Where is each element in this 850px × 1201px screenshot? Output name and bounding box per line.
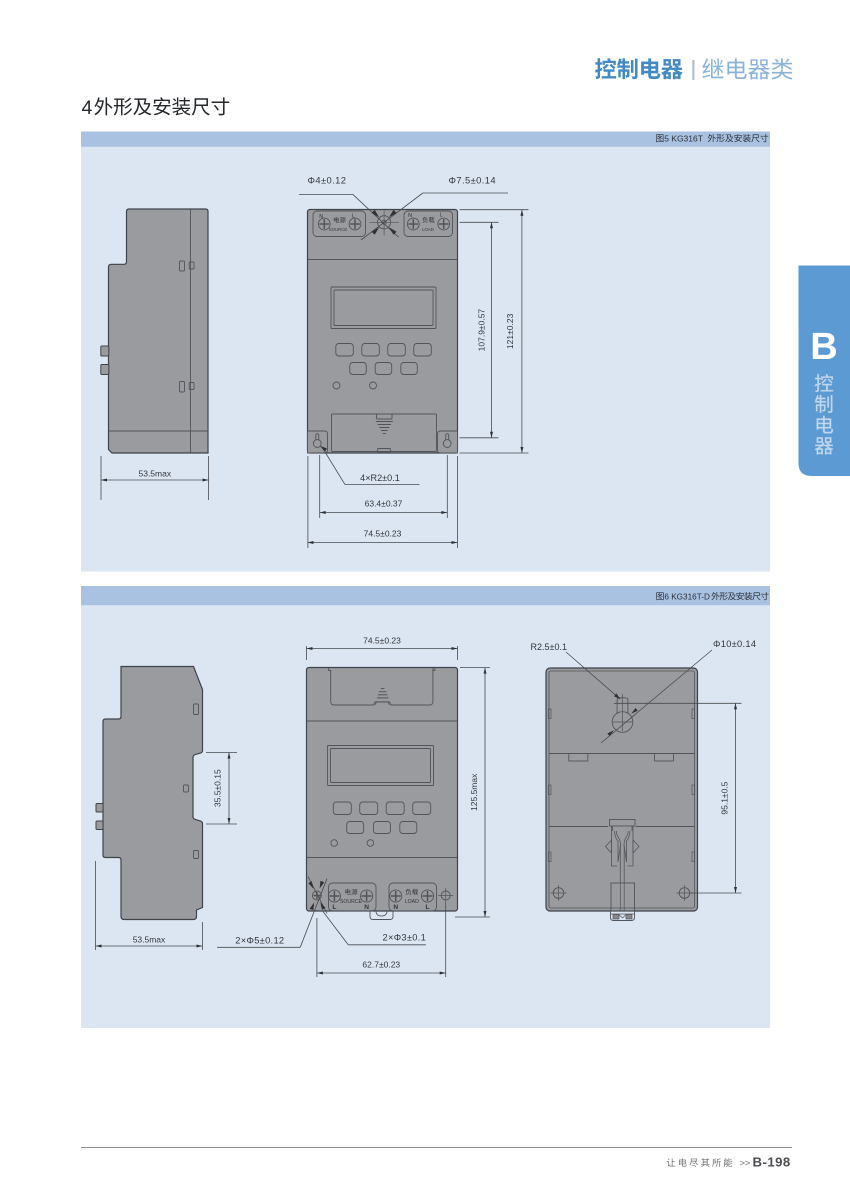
svg-text:L: L xyxy=(352,213,355,219)
svg-text:Φ4±0.12: Φ4±0.12 xyxy=(308,175,347,186)
svg-text:N: N xyxy=(364,904,369,911)
svg-text:95.1±0.5: 95.1±0.5 xyxy=(719,781,729,814)
svg-text:SOURCE: SOURCE xyxy=(329,227,348,232)
svg-text:53.5max: 53.5max xyxy=(133,935,166,945)
svg-text:125.5max: 125.5max xyxy=(469,773,479,811)
svg-text:SOURCE: SOURCE xyxy=(340,899,363,905)
svg-text:107.9±0.57: 107.9±0.57 xyxy=(476,309,486,352)
svg-text:LOAD: LOAD xyxy=(422,227,434,232)
svg-text:5 KG316T: 5 KG316T xyxy=(664,134,703,144)
svg-text:2×Φ5±0.12: 2×Φ5±0.12 xyxy=(235,935,284,945)
svg-text:N: N xyxy=(319,214,323,220)
svg-text:B: B xyxy=(810,326,837,368)
svg-text:74.5±0.23: 74.5±0.23 xyxy=(364,529,402,539)
svg-text:B-198: B-198 xyxy=(753,1155,791,1170)
svg-text:35.5±0.15: 35.5±0.15 xyxy=(213,769,223,807)
svg-text:L: L xyxy=(440,212,443,218)
svg-text:121±0.23: 121±0.23 xyxy=(505,313,515,349)
svg-text:62.7±0.23: 62.7±0.23 xyxy=(362,960,400,970)
svg-text:53.5max: 53.5max xyxy=(138,468,171,478)
svg-text:4: 4 xyxy=(82,97,93,119)
svg-text:2×Φ3±0.1: 2×Φ3±0.1 xyxy=(383,933,427,943)
svg-text:N: N xyxy=(408,213,412,219)
svg-text:6 KG316T-D: 6 KG316T-D xyxy=(664,593,710,602)
svg-text:Φ7.5±0.14: Φ7.5±0.14 xyxy=(449,175,497,186)
svg-text:N: N xyxy=(393,904,398,911)
svg-text:L: L xyxy=(425,904,429,911)
svg-text:4×R2±0.1: 4×R2±0.1 xyxy=(360,473,400,483)
svg-text:74.5±0.23: 74.5±0.23 xyxy=(363,636,401,646)
svg-text:R2.5±0.1: R2.5±0.1 xyxy=(531,642,567,652)
svg-text:>>: >> xyxy=(740,1158,751,1168)
svg-text:L: L xyxy=(332,904,336,911)
svg-text:63.4±0.37: 63.4±0.37 xyxy=(365,499,403,509)
svg-text:LOAD: LOAD xyxy=(405,899,419,905)
svg-text:Φ10±0.14: Φ10±0.14 xyxy=(713,639,756,649)
